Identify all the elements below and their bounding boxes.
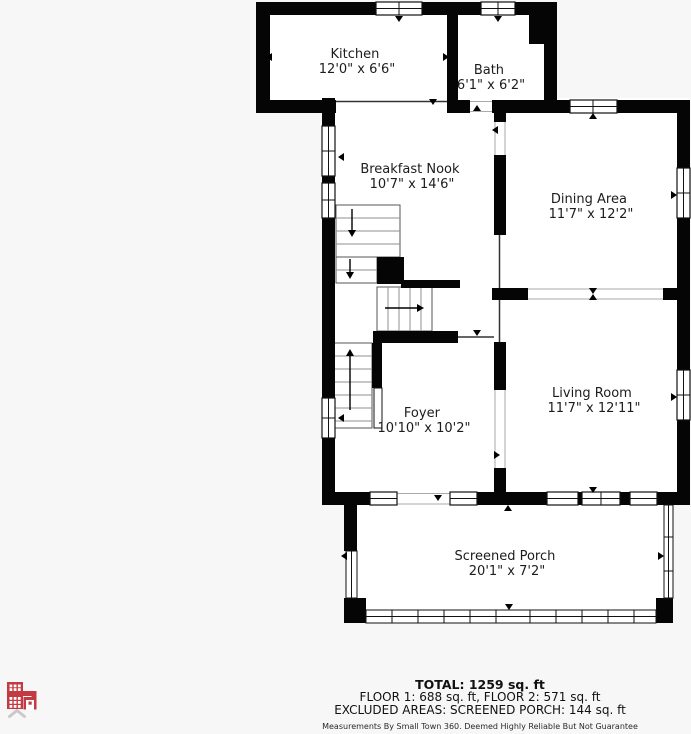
window-kitchen-top — [376, 2, 422, 15]
window-foyer-left — [322, 398, 335, 438]
disclaimer: Measurements By Small Town 360. Deemed H… — [250, 722, 691, 731]
screen-porch-right — [664, 505, 673, 598]
screen-porch-bottom — [366, 610, 656, 623]
window-nook-left-lower — [322, 183, 335, 218]
window-living-bottom-2 — [582, 492, 620, 505]
window-nook-left-upper — [322, 126, 335, 176]
excluded-areas-text: EXCLUDED AREAS: SCREENED PORCH: 144 sq. … — [270, 704, 690, 717]
floor-plan-drawing: Kitchen 12'0" x 6'6" Bath 6'1" x 6'2" Br… — [0, 0, 691, 734]
screen-porch-left — [346, 551, 357, 598]
window-foyer-bottom-left — [370, 492, 397, 505]
logo-building-icon — [7, 682, 37, 717]
chevron-up-icon — [10, 711, 25, 717]
window-living-bottom-1 — [547, 492, 578, 505]
window-foyer-bottom-right — [450, 492, 477, 505]
room-label-screened-porch: Screened Porch 20'1" x 7'2" — [455, 549, 560, 579]
room-label-dining-area: Dining Area 11'7" x 12'2" — [549, 192, 634, 222]
room-label-breakfast-nook: Breakfast Nook 10'7" x 14'6" — [360, 162, 463, 192]
window-dining-top — [570, 100, 617, 113]
floor-plan-page: Kitchen 12'0" x 6'6" Bath 6'1" x 6'2" Br… — [0, 0, 691, 734]
window-living-bottom-3 — [630, 492, 657, 505]
room-label-living-room: Living Room 11'7" x 12'11" — [548, 386, 641, 416]
window-bath-top — [481, 2, 515, 15]
floor-areas — [256, 2, 690, 623]
floor-areas-text: FLOOR 1: 688 sq. ft, FLOOR 2: 571 sq. ft — [270, 691, 690, 704]
plan-summary: TOTAL: 1259 sq. ft FLOOR 1: 688 sq. ft, … — [270, 678, 690, 716]
window-dining-right — [677, 168, 690, 218]
window-living-right — [677, 370, 690, 420]
